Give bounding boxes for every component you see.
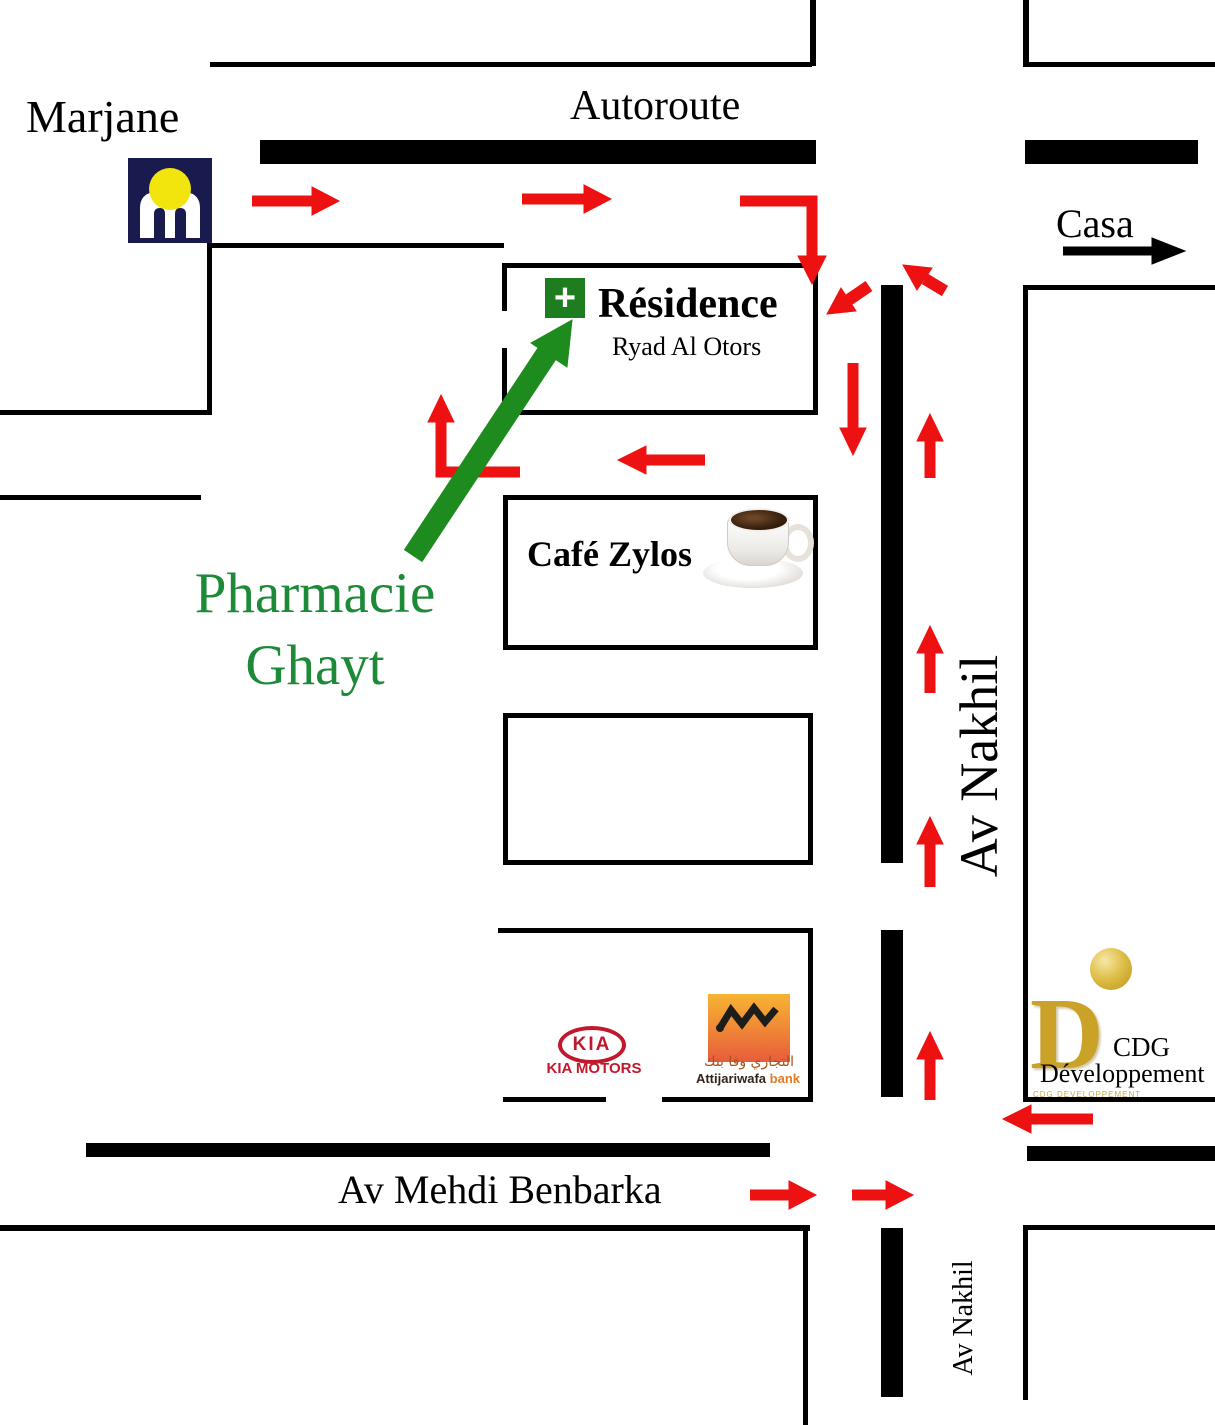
marjane-logo (128, 158, 212, 243)
attijariwafa-name-label: Attijariwafa bank (684, 1071, 812, 1086)
attijariwafa-logo (708, 994, 790, 1062)
attijariwafa-name: Attijariwafa (696, 1071, 766, 1086)
cdg-label-line2: Développement (1040, 1059, 1205, 1089)
pharmacy-name-line1: Pharmacie (150, 558, 480, 630)
av-mehdi-benbarka-label: Av Mehdi Benbarka (338, 1166, 662, 1213)
attijariwafa-zigzag (720, 1008, 776, 1028)
red-arrowhead-right-3 (789, 1181, 816, 1209)
red-arrowhead-right-2 (584, 185, 611, 213)
marjane-label: Marjane (26, 90, 179, 143)
pharmacy-cross-icon: + (545, 278, 585, 318)
green-pharmacy-arrow-shaft (413, 352, 548, 556)
residence-subtitle: Ryad Al Otors (612, 332, 761, 362)
kia-motors-label: KIA MOTORS (538, 1060, 650, 1077)
red-arrowhead-up-1 (917, 414, 943, 441)
pharmacy-name: Pharmacie Ghayt (150, 558, 480, 703)
kia-logo: KIA (558, 1026, 626, 1064)
pharmacy-name-line2: Ghayt (150, 630, 480, 702)
casa-label: Casa (1056, 200, 1134, 247)
red-arrowhead-left-2 (1003, 1105, 1031, 1133)
casa-direction-arrowhead (1152, 238, 1185, 264)
red-arrowhead-up-4 (917, 1032, 943, 1059)
red-arrowhead-up-turn (428, 395, 454, 422)
marjane-sun-icon (149, 168, 191, 210)
attijariwafa-arabic-label: التجاري وفا بنك (688, 1054, 810, 1070)
red-arrowhead-right-4 (886, 1181, 913, 1209)
av-nakhil-label: Av Nakhil (948, 655, 1010, 877)
pharmacy-cross-glyph: + (554, 279, 576, 317)
red-arrowhead-right-1 (312, 187, 339, 215)
red-arrow-turn-down (740, 201, 812, 256)
red-arrow-diag-downleft (847, 286, 869, 301)
kia-logo-text: KIA (573, 1034, 612, 1056)
red-arrowhead-left-1 (618, 446, 646, 474)
coffee-surface-icon (729, 508, 789, 532)
red-arrowhead-down (840, 428, 866, 455)
red-arrowhead-up-2 (917, 626, 943, 653)
red-arrow-diag-upleft (925, 279, 945, 291)
access-map: Marjane Autoroute Casa + Résidence Ryad … (0, 0, 1215, 1425)
cdg-logo-fineprint: CDG DEVELOPPEMENT (1033, 1090, 1143, 1099)
av-nakhil-bottom-label: Av Nakhil (948, 1260, 980, 1375)
cafe-label: Café Zylos (527, 533, 692, 575)
red-arrowhead-down-turn (798, 256, 826, 284)
residence-title: Résidence (598, 280, 778, 328)
red-arrowhead-up-3 (917, 817, 943, 844)
autoroute-label: Autoroute (570, 82, 740, 130)
attijariwafa-bank-word: bank (770, 1071, 800, 1086)
